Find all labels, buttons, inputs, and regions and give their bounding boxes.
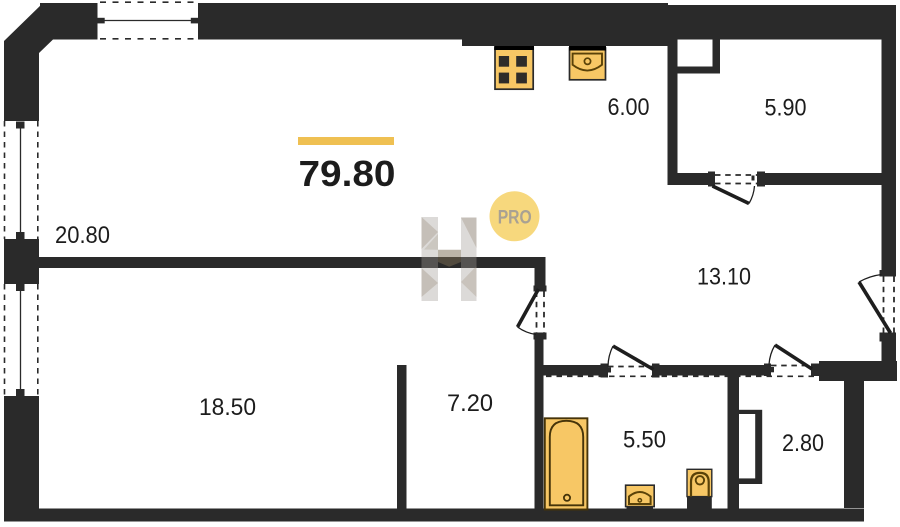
svg-text:7.20: 7.20 [447,390,493,417]
svg-text:79.80: 79.80 [299,153,396,194]
svg-text:6.00: 6.00 [608,94,650,121]
svg-text:5.50: 5.50 [623,427,666,454]
svg-text:13.10: 13.10 [697,264,751,291]
svg-text:PRO: PRO [498,207,532,228]
svg-text:5.90: 5.90 [765,95,807,122]
svg-text:20.80: 20.80 [55,222,110,249]
svg-text:18.50: 18.50 [199,394,256,421]
svg-text:2.80: 2.80 [782,430,824,457]
